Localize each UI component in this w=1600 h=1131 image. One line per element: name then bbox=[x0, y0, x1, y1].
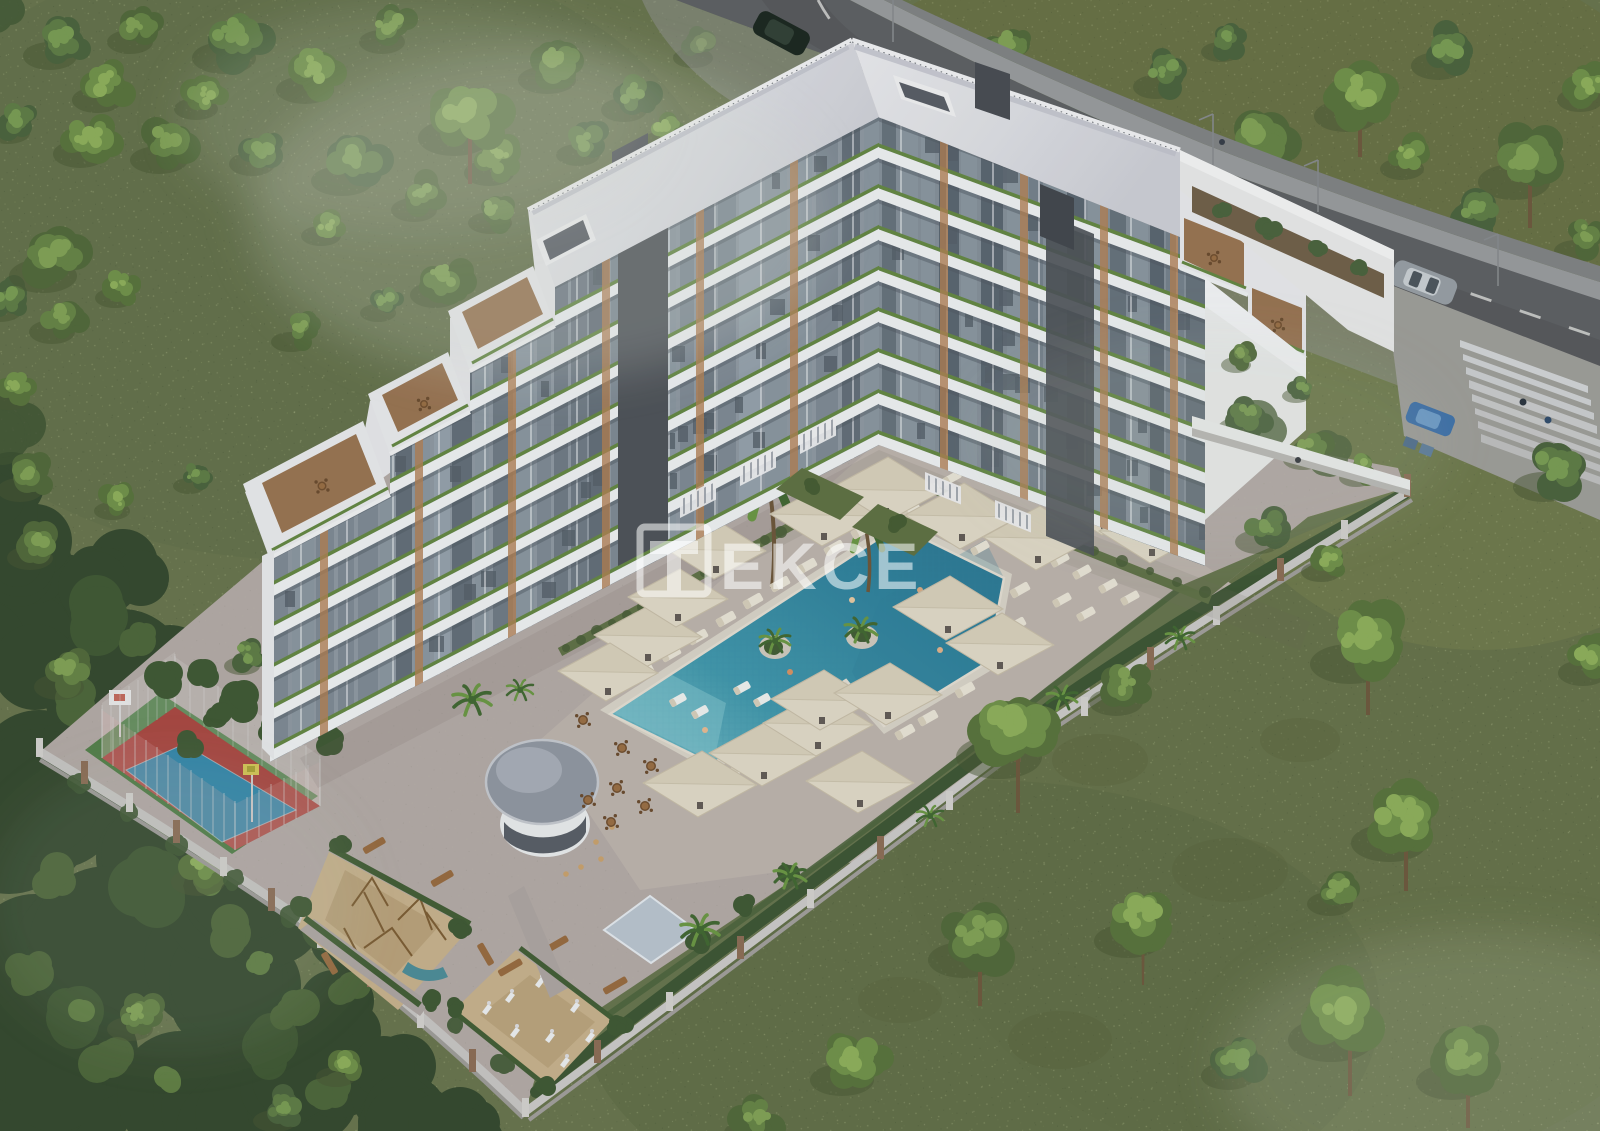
svg-text:EKCE: EKCE bbox=[720, 529, 923, 603]
